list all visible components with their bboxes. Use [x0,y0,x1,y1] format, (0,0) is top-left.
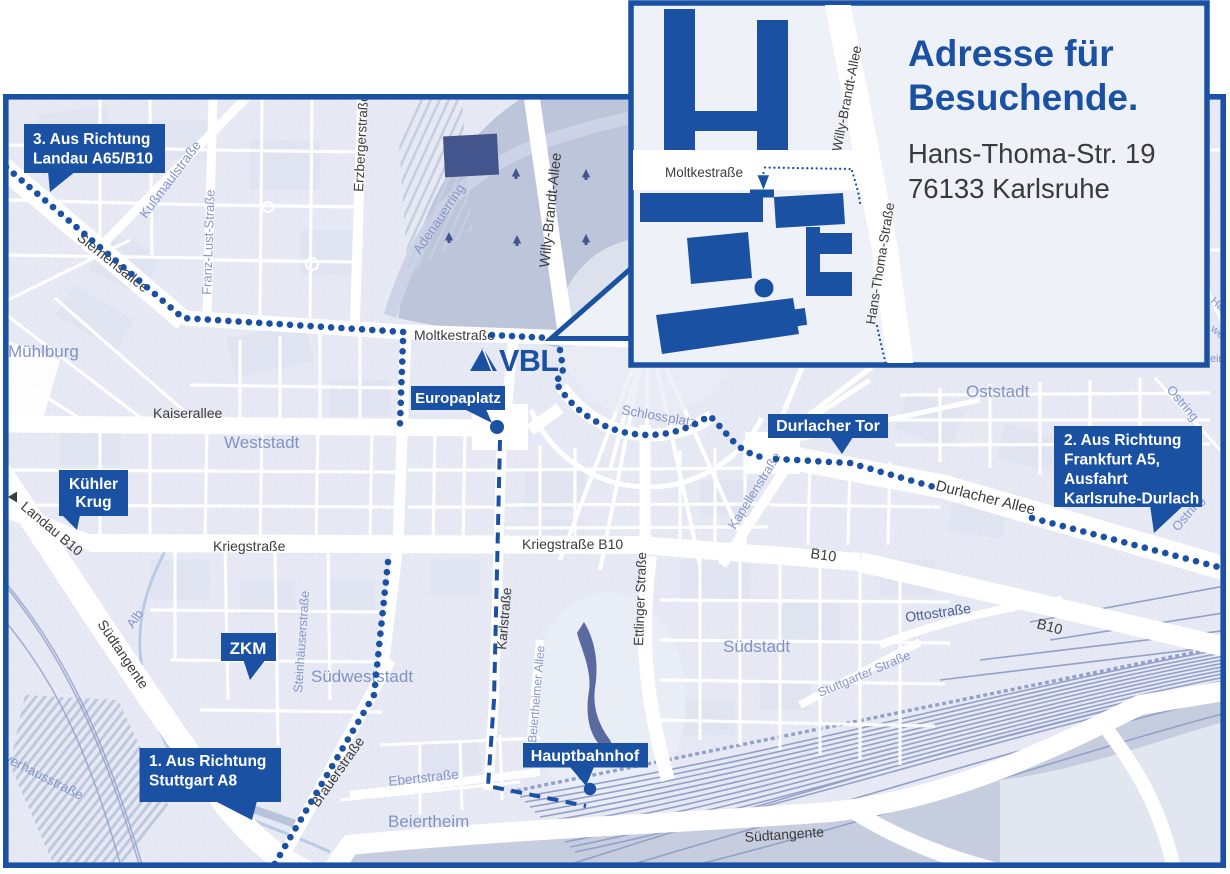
svg-text:Oststadt: Oststadt [966,382,1030,401]
svg-text:Weststadt: Weststadt [224,433,300,452]
svg-text:Beiertheim: Beiertheim [388,812,469,831]
svg-text:Frankfurt A5,: Frankfurt A5, [1064,452,1160,469]
svg-text:Kriegstraße: Kriegstraße [213,538,286,554]
svg-text:Europaplatz: Europaplatz [415,390,501,407]
svg-text:ZKM: ZKM [230,639,267,658]
svg-text:2. Aus Richtung: 2. Aus Richtung [1064,432,1181,449]
svg-text:Karlsruhe-Durlach: Karlsruhe-Durlach [1064,491,1199,508]
svg-text:Ausfahrt: Ausfahrt [1064,471,1128,488]
svg-text:Kriegstraße B10: Kriegstraße B10 [522,536,623,552]
svg-text:Hauptbahnhof: Hauptbahnhof [531,748,640,765]
svg-text:Südweststadt: Südweststadt [311,667,413,686]
svg-text:3. Aus Richtung: 3. Aus Richtung [33,131,150,148]
svg-text:Krug: Krug [75,494,111,511]
svg-text:Durlacher Tor: Durlacher Tor [776,418,880,435]
svg-text:Kühler: Kühler [69,476,118,493]
svg-text:Besuchende.: Besuchende. [908,77,1138,118]
svg-text:Landau A65/B10: Landau A65/B10 [33,151,153,168]
svg-text:Hans-Thoma-Str. 19: Hans-Thoma-Str. 19 [908,138,1156,169]
svg-text:Stuttgart A8: Stuttgart A8 [149,773,237,790]
svg-text:VBL: VBL [499,344,559,378]
svg-text:Moltkestraße: Moltkestraße [665,165,743,180]
svg-text:1. Aus Richtung: 1. Aus Richtung [149,753,266,770]
svg-text:Südstadt: Südstadt [723,637,790,656]
svg-text:Moltkestraße: Moltkestraße [414,327,495,343]
svg-text:Kaiserallee: Kaiserallee [153,405,222,421]
svg-text:76133 Karlsruhe: 76133 Karlsruhe [908,173,1110,204]
svg-text:Mühlburg: Mühlburg [8,342,79,361]
svg-text:Adresse für: Adresse für [908,33,1114,74]
